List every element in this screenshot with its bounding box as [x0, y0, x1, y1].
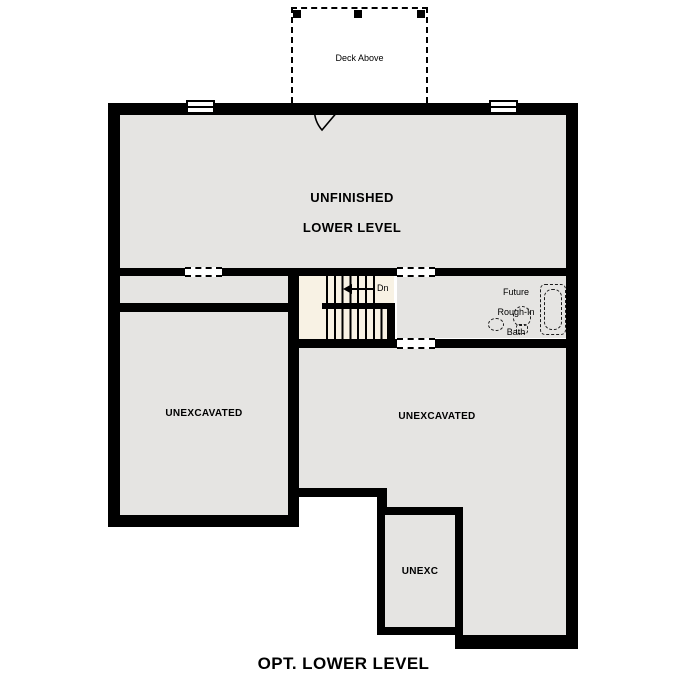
future-bath-label-line3: Bath [507, 327, 526, 337]
wall-bottom-right [455, 635, 578, 649]
wall-opening [397, 338, 435, 349]
future-bath-label-line1: Future [503, 287, 529, 297]
deck-post-icon [354, 10, 362, 18]
deck-post-icon [293, 10, 301, 18]
wall-left-room-bottom [108, 515, 299, 527]
window-icon [186, 100, 215, 114]
stair-down-arrow-head [343, 284, 352, 294]
wall-step [294, 488, 387, 497]
wall-right [566, 103, 578, 649]
hallway-strip [120, 276, 288, 303]
wall-unexc-top [377, 507, 463, 515]
future-bath-label: Future Rough-In Bath [478, 277, 544, 347]
plan-title: OPT. LOWER LEVEL [0, 654, 687, 674]
stair-treads-lower [326, 309, 391, 339]
wall-unexc-right [455, 507, 463, 635]
unexcavated-left-label: UNEXCAVATED [124, 408, 284, 420]
unexcavated-right-label: UNEXCAVATED [357, 411, 517, 423]
deck-post-icon [417, 10, 425, 18]
bathtub-basin-icon [544, 289, 562, 330]
wall-hall-top [108, 268, 578, 276]
wall-unexc-bottom [377, 627, 463, 635]
stair-down-arrow [351, 288, 374, 290]
future-bath-label-line2: Rough-In [497, 307, 534, 317]
unfinished-lower-level-label: UNFINISHED LOWER LEVEL [244, 175, 444, 250]
unfinished-label-line1: UNFINISHED [310, 190, 393, 205]
unexcavated-right-room [463, 515, 566, 637]
deck-label: Deck Above [291, 53, 428, 63]
stair-down-label: Dn [377, 283, 389, 293]
unexc-small-label: UNEXC [385, 566, 455, 578]
wall-left [108, 103, 120, 527]
floor-plan-canvas: Deck Above Dn Future Rough-In Bath [0, 0, 687, 687]
window-icon [489, 100, 518, 114]
wall-opening [185, 267, 222, 277]
wall-opening [397, 267, 435, 277]
wall-hall-bottom [108, 303, 288, 312]
wall-mid-stair [322, 303, 394, 309]
wall-unexc-left [377, 507, 385, 635]
unfinished-label-line2: LOWER LEVEL [303, 220, 401, 235]
